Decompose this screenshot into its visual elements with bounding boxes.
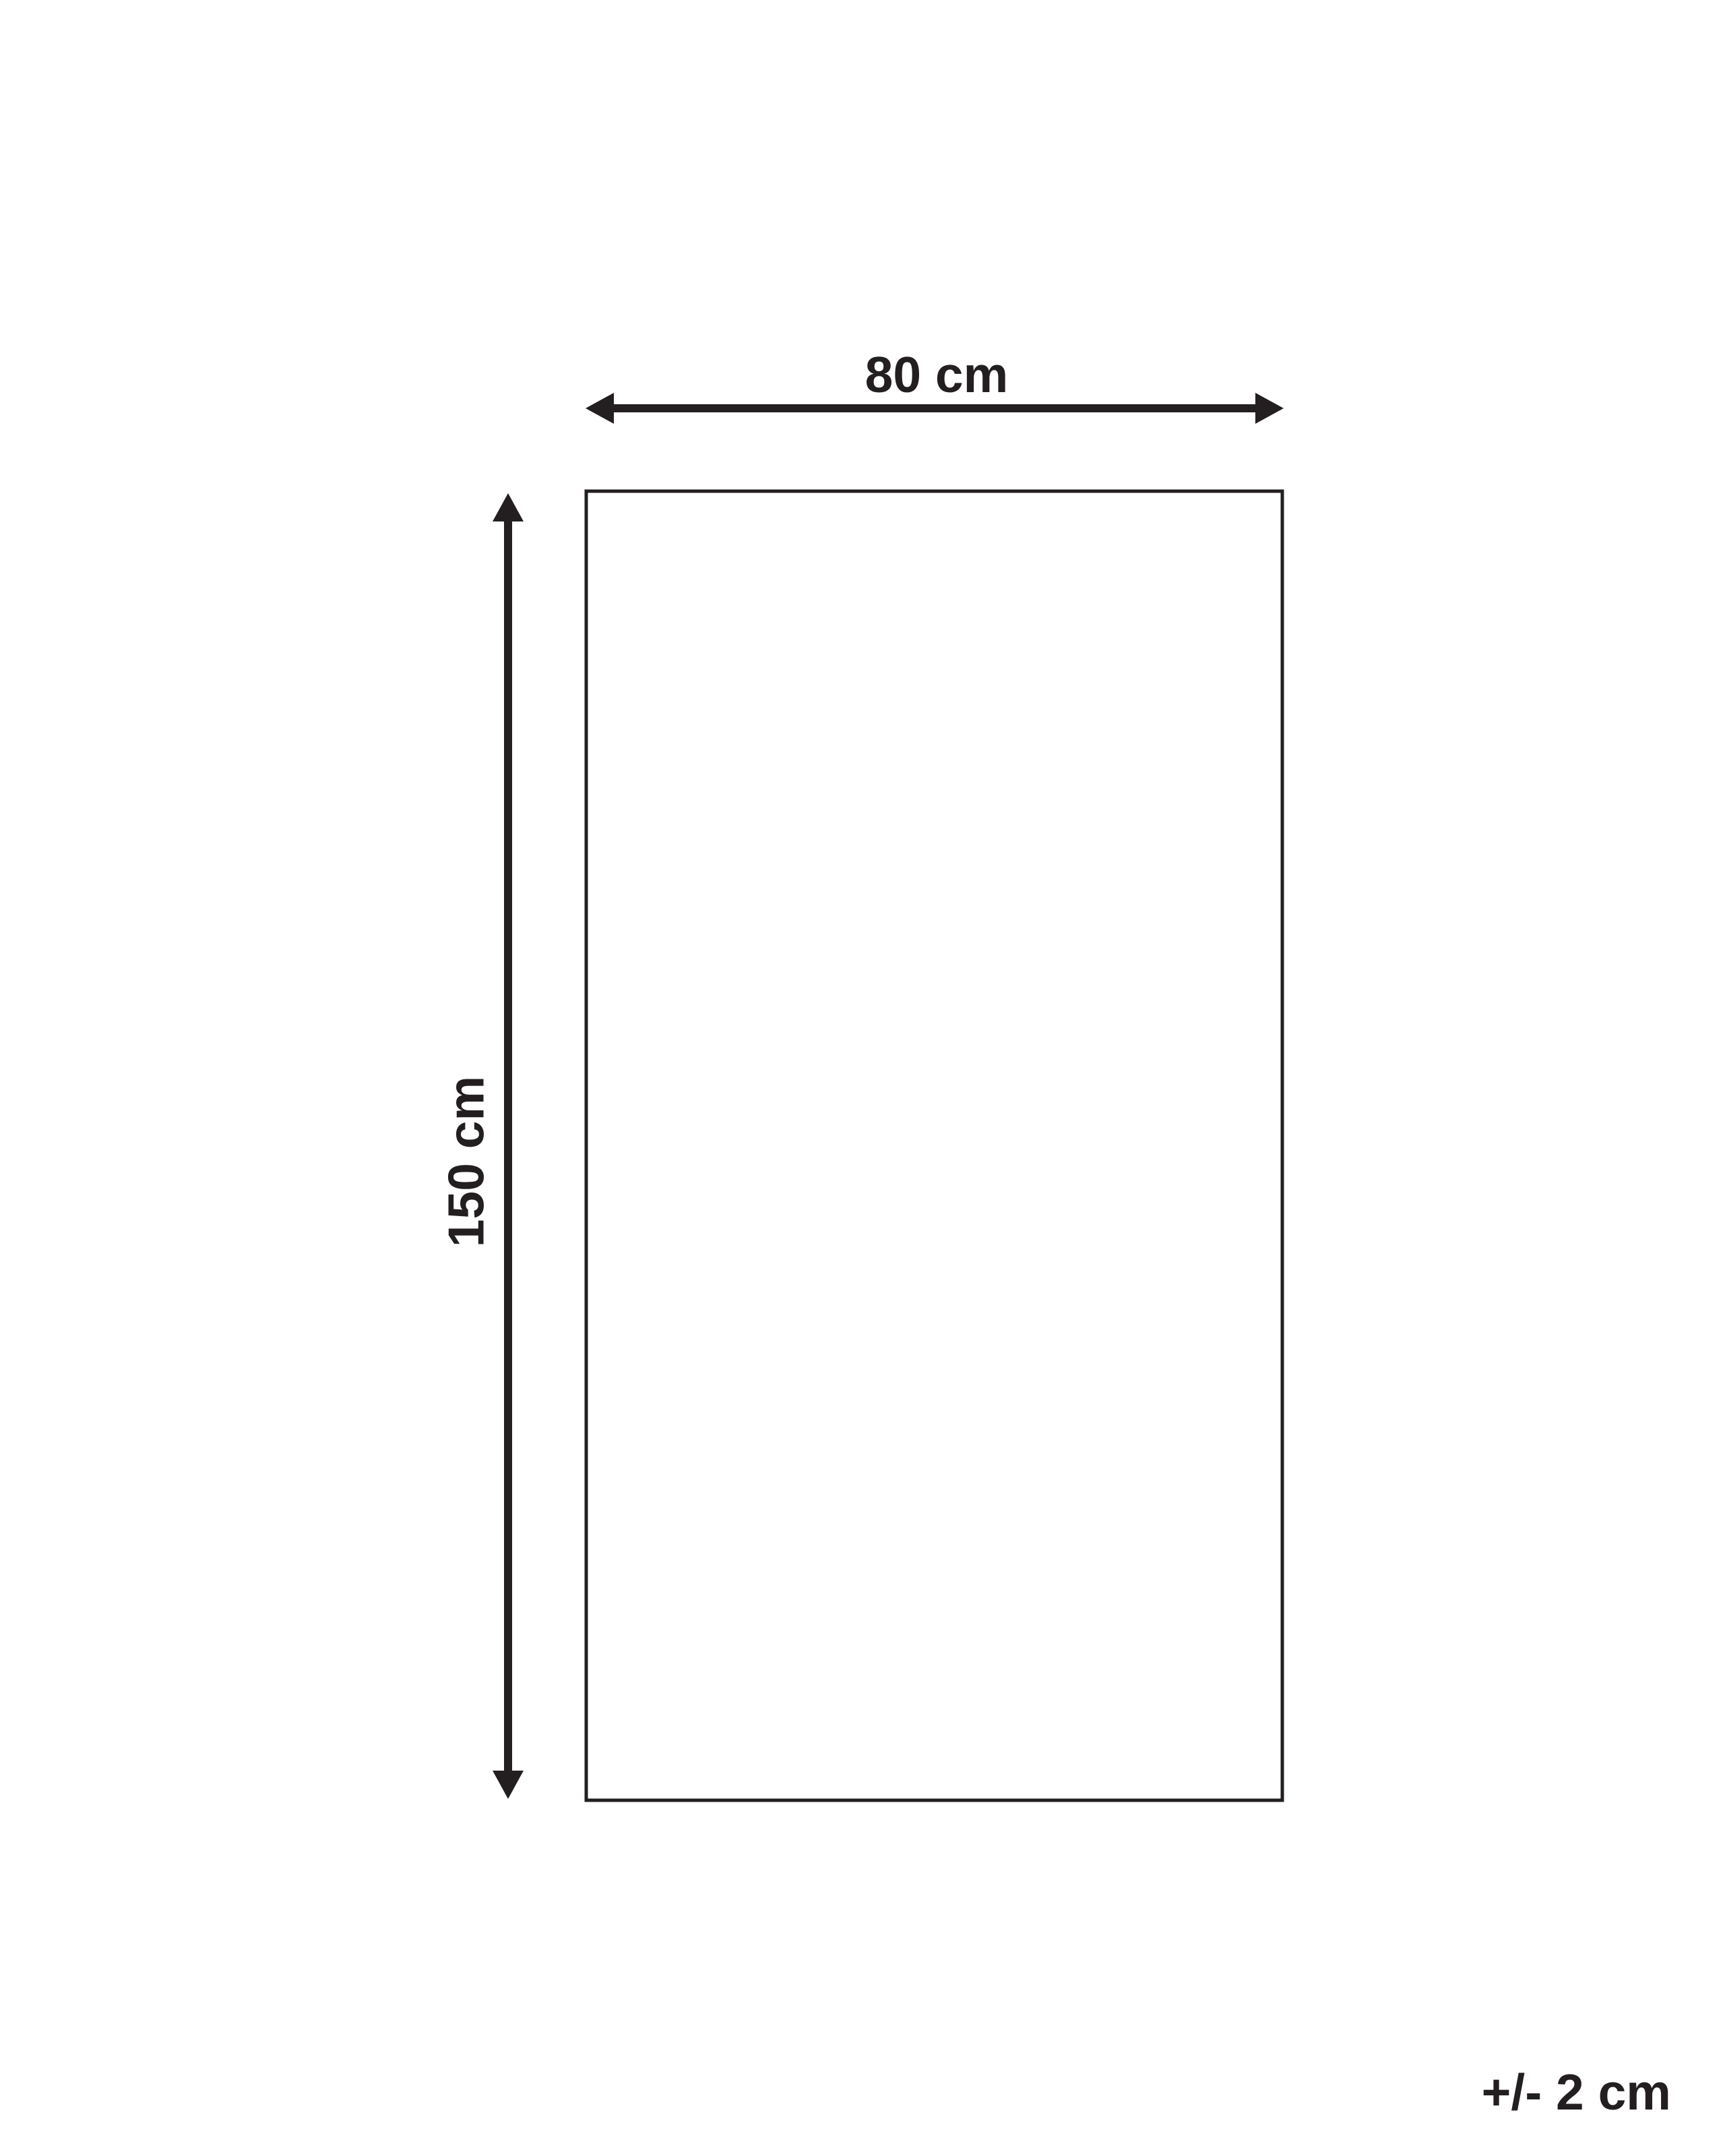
arrowhead-down-icon <box>493 1771 524 1799</box>
dimension-diagram: 80 cm 150 cm +/- 2 cm <box>0 0 1725 2156</box>
product-outline-rect <box>586 491 1282 1800</box>
diagram-canvas <box>0 0 1725 2156</box>
arrowhead-right-icon <box>1255 393 1284 424</box>
arrowhead-up-icon <box>493 493 524 521</box>
arrowhead-left-icon <box>586 393 614 424</box>
width-dimension-label: 80 cm <box>865 350 1009 400</box>
height-dimension-label: 150 cm <box>441 1076 492 1247</box>
height-dimension-arrow <box>493 493 524 1799</box>
tolerance-note: +/- 2 cm <box>1482 2067 1671 2118</box>
